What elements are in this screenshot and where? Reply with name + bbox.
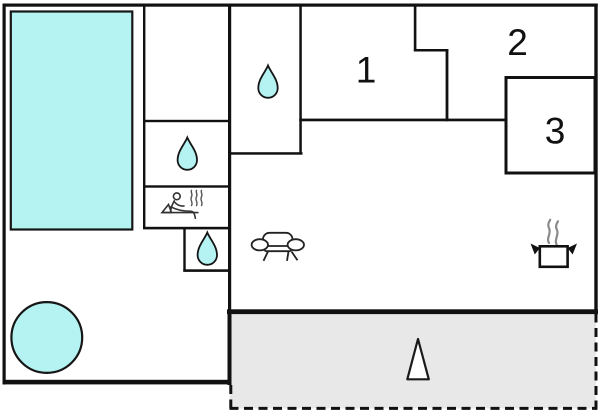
wall-left-column bbox=[143, 6, 145, 229]
swimming-pool bbox=[11, 12, 133, 230]
wall-mid-bath-bottom bbox=[228, 152, 303, 155]
sauna-person-icon bbox=[162, 190, 202, 218]
wall-sauna-bottom bbox=[143, 227, 230, 230]
water-drop-icon bbox=[198, 233, 217, 265]
sofa-icon bbox=[252, 233, 304, 261]
sofa-leg bbox=[264, 252, 269, 261]
wall-terrace-left-solid bbox=[228, 313, 232, 385]
sauna-person-head bbox=[173, 193, 180, 200]
wall-room1-step bbox=[414, 49, 449, 52]
wall-room1-right-upper bbox=[414, 5, 417, 51]
wall-small-bath-bottom bbox=[183, 269, 230, 272]
sofa-leg bbox=[292, 252, 298, 261]
wall-pool-zone-bottom bbox=[3, 380, 232, 385]
pot-body bbox=[540, 246, 568, 266]
water-drop-icon bbox=[258, 66, 277, 98]
room-2-label: 2 bbox=[507, 22, 528, 63]
sauna-person-arm bbox=[175, 202, 184, 206]
hot-tub-circle bbox=[11, 302, 82, 373]
floor-plan-image: 1 2 3 bbox=[0, 0, 600, 414]
sauna-steam-line bbox=[201, 190, 202, 205]
cooking-pot-icon bbox=[531, 220, 578, 267]
sofa-armrest bbox=[288, 239, 304, 250]
sofa-armrest bbox=[252, 239, 268, 250]
pot-handle bbox=[531, 244, 540, 255]
room-1-label: 1 bbox=[356, 50, 377, 91]
wall-left-col-h1 bbox=[143, 120, 230, 122]
pot-steam-line bbox=[548, 220, 550, 243]
floor-plan-svg: 1 2 3 bbox=[0, 0, 600, 414]
wall-room1-right-lower bbox=[446, 49, 449, 121]
wall-bedrooms-bottom bbox=[299, 119, 507, 122]
wall-mid-bath-right bbox=[299, 5, 302, 155]
wall-small-bath-left bbox=[183, 227, 185, 272]
pot-steam-line bbox=[556, 221, 558, 245]
pot-handle bbox=[568, 244, 577, 255]
wall-main-divider bbox=[228, 5, 231, 310]
sofa-leg bbox=[287, 252, 289, 261]
wall-left-col-h2 bbox=[143, 185, 230, 187]
water-drop-icon bbox=[178, 138, 197, 170]
sauna-steam-line bbox=[196, 190, 197, 205]
room-3-label: 3 bbox=[545, 111, 566, 152]
wall-outer-left bbox=[3, 4, 6, 385]
sauna-steam-line bbox=[191, 190, 192, 205]
wall-living-bottom bbox=[227, 309, 598, 314]
